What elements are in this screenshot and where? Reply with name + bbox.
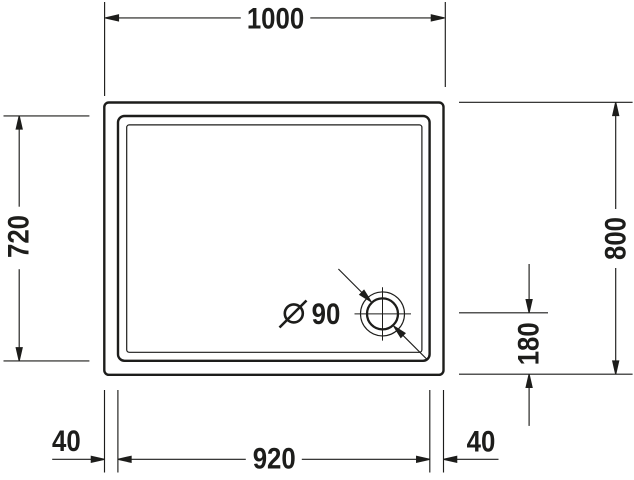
svg-text:40: 40 (467, 425, 496, 458)
svg-text:40: 40 (52, 424, 81, 457)
svg-text:1000: 1000 (247, 1, 304, 34)
svg-text:720: 720 (2, 215, 35, 258)
svg-text:180: 180 (512, 322, 545, 365)
svg-text:800: 800 (599, 217, 632, 260)
svg-text:90: 90 (312, 297, 341, 330)
svg-text:920: 920 (253, 442, 296, 475)
